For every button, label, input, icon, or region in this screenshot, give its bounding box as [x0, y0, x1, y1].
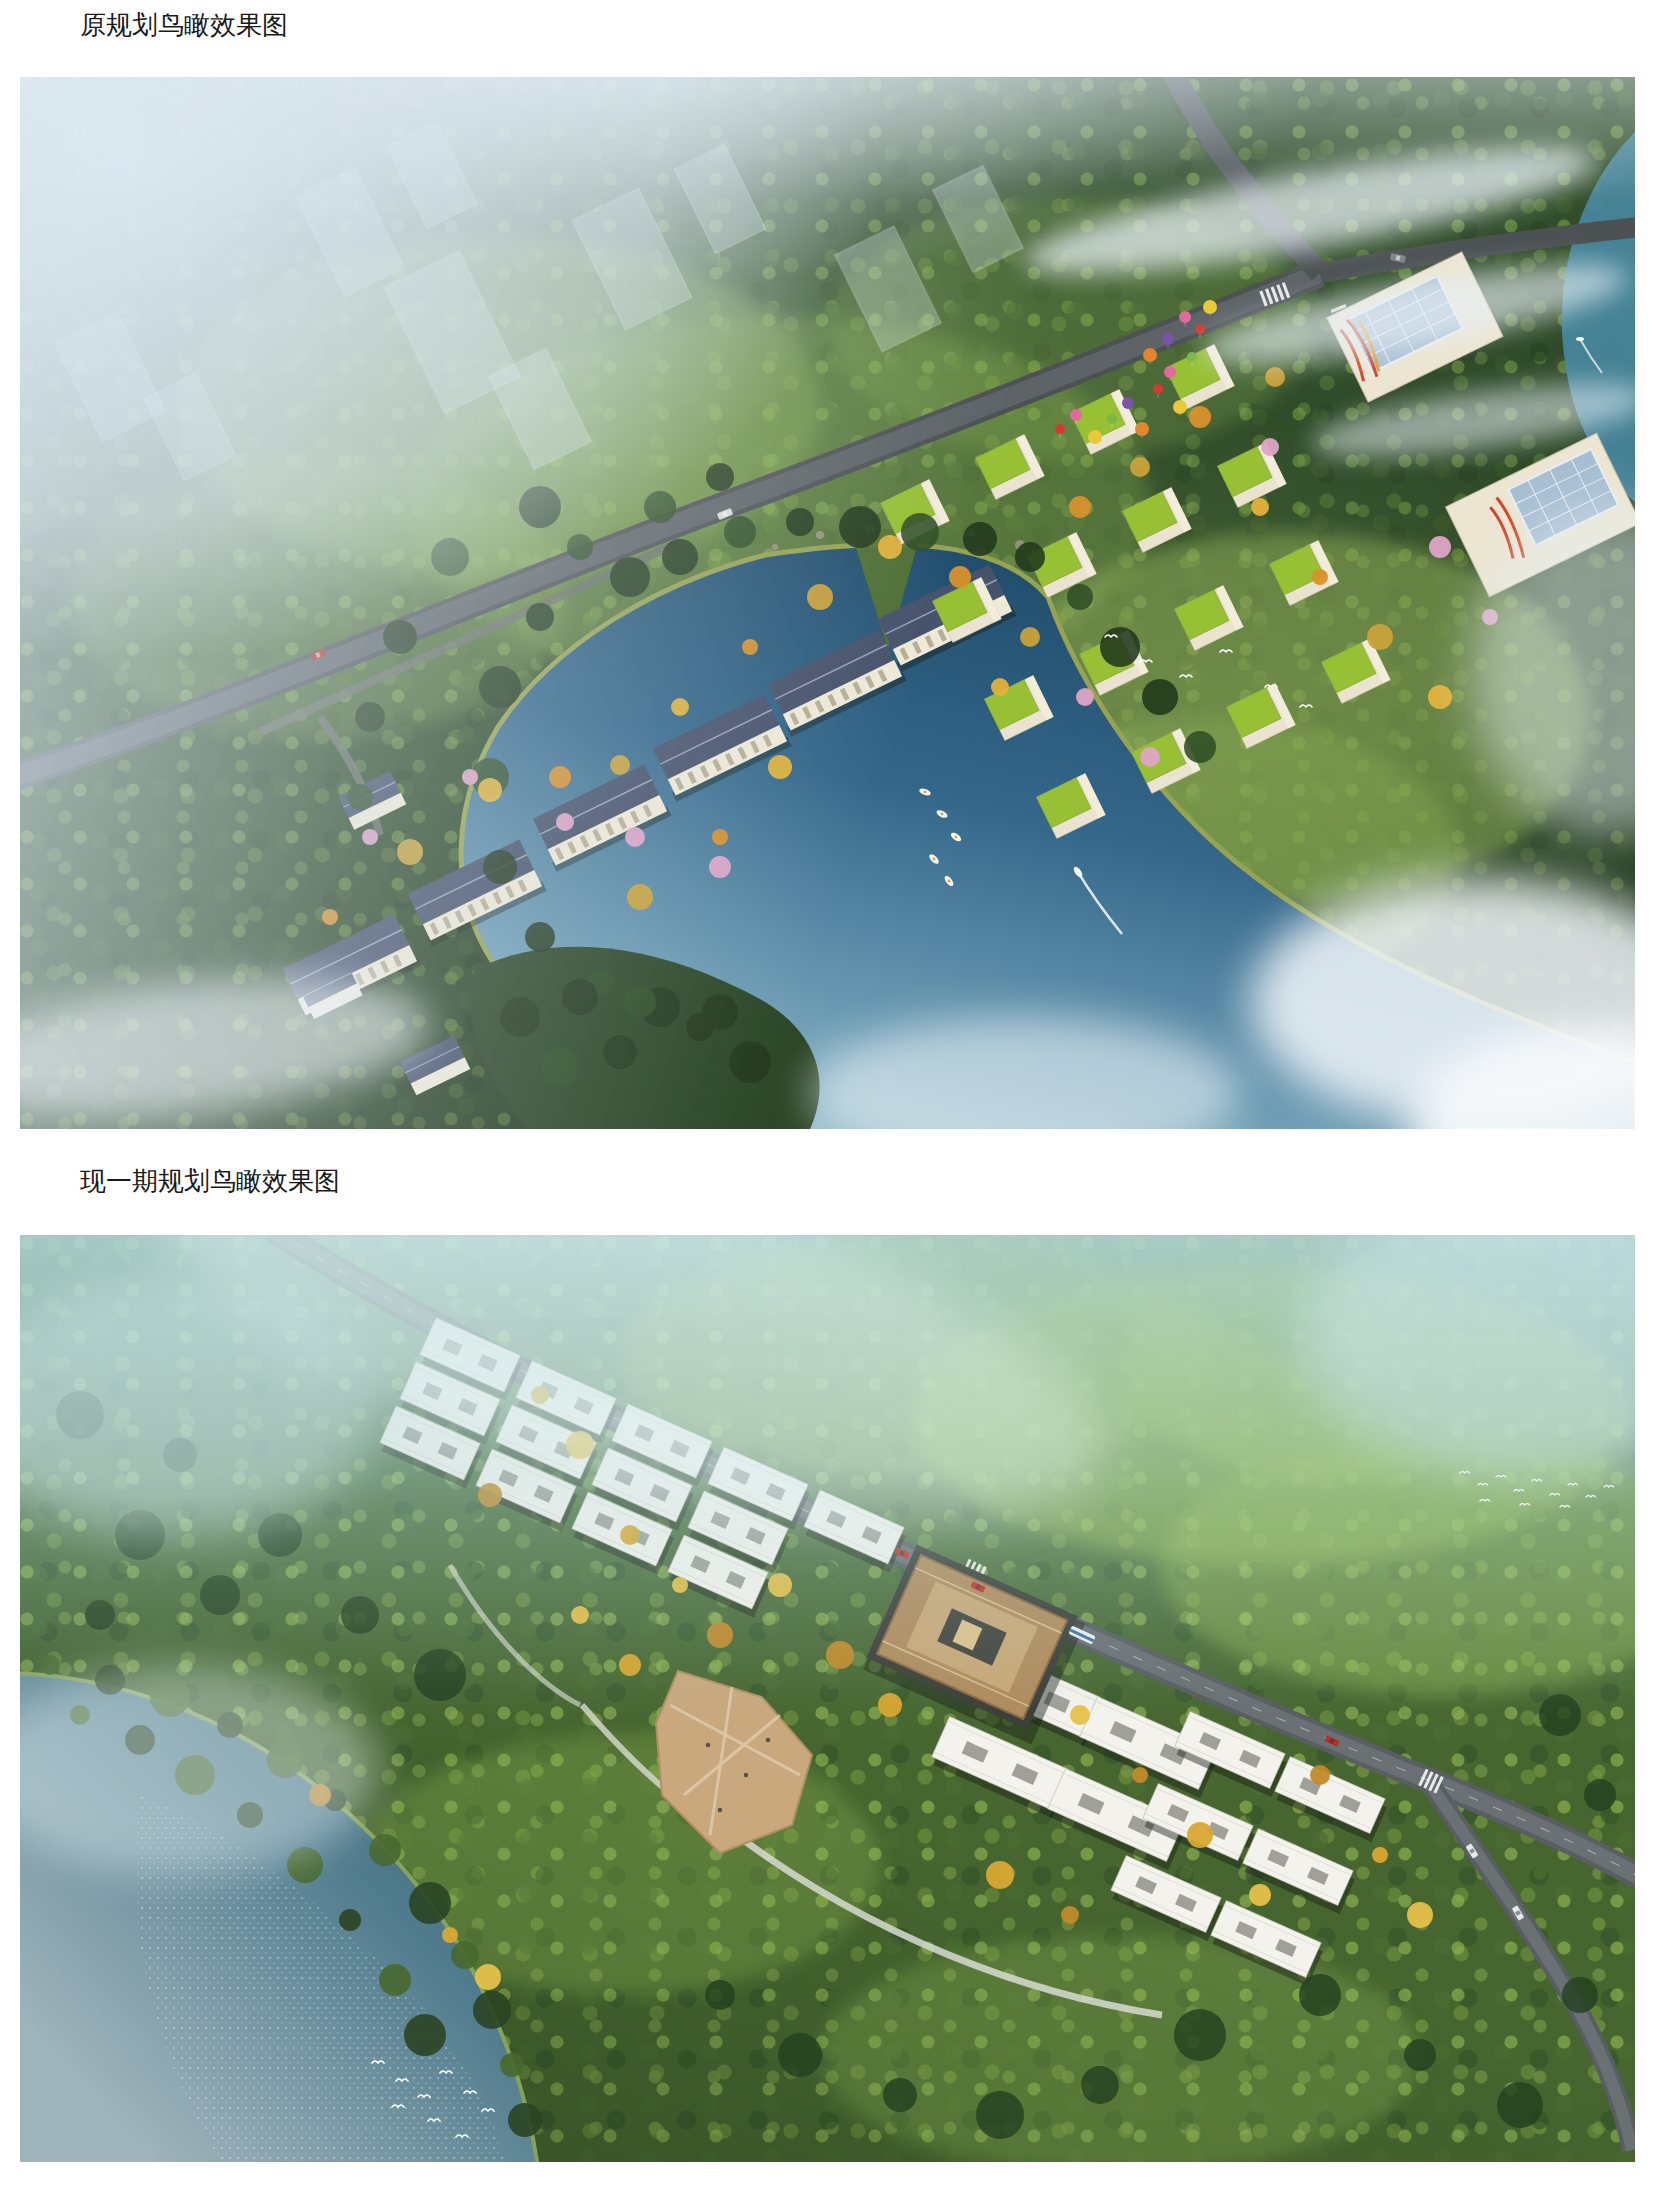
balloon	[1107, 414, 1117, 424]
tree-dark	[1497, 2082, 1543, 2128]
tree-autumn	[397, 839, 423, 865]
caption-original-plan: 原规划鸟瞰效果图	[80, 10, 288, 40]
tree-gold	[826, 1641, 854, 1669]
shore-tree	[379, 1964, 411, 1996]
tree-autumn	[807, 584, 833, 610]
shore-tree	[267, 1742, 303, 1778]
ghost-building	[387, 121, 478, 228]
tree-gold	[442, 1927, 458, 1943]
tree-gold	[531, 1386, 549, 1404]
tree-dark	[705, 1980, 735, 2010]
tree-dark	[85, 1600, 115, 1630]
balloon	[1143, 348, 1157, 362]
villa	[400, 1036, 470, 1096]
corner-boat	[1576, 337, 1584, 341]
tree-gold	[672, 1577, 688, 1593]
tree-gold	[707, 1622, 733, 1648]
rock	[772, 544, 778, 550]
tree-gold	[620, 1525, 640, 1545]
tree-dark	[414, 1649, 466, 1701]
shore-tree	[473, 1991, 511, 2029]
shore-tree	[40, 1655, 60, 1675]
tree-dark	[1142, 679, 1178, 715]
tree-dark	[1184, 731, 1216, 763]
shore-tree	[70, 1705, 90, 1725]
shore-tree	[287, 1847, 323, 1883]
page: 原规划鸟瞰效果图	[0, 0, 1653, 2195]
tree-blossom	[1076, 688, 1094, 706]
tree-autumn	[991, 678, 1009, 696]
tree-autumn	[610, 755, 630, 775]
shore-tree	[369, 1834, 401, 1866]
tree-blossom	[462, 769, 478, 785]
tree-gold	[475, 1964, 501, 1990]
boat-canopy	[941, 813, 944, 816]
balloon	[1179, 311, 1191, 323]
balloon	[1055, 424, 1065, 434]
tree-autumn	[549, 766, 571, 788]
tree-dark	[686, 1013, 714, 1041]
tree-gold	[1372, 1847, 1388, 1863]
tree-autumn	[1069, 496, 1091, 518]
shore-tree	[451, 1941, 479, 1969]
tree-dark	[258, 1513, 302, 1557]
tree-dark	[724, 516, 756, 548]
tree-gold	[768, 1573, 792, 1597]
balloon	[1203, 300, 1217, 314]
tree-blossom	[1261, 438, 1279, 456]
balloon	[1164, 366, 1176, 378]
tree-gold	[571, 1606, 589, 1624]
tree-dark	[1174, 2009, 1226, 2061]
tree-autumn	[1020, 627, 1040, 647]
tree-dark	[901, 513, 939, 551]
tree-gold	[1070, 1705, 1090, 1725]
tree-dark	[383, 620, 417, 654]
tree-dark	[115, 1510, 165, 1560]
tree-autumn	[1189, 406, 1211, 428]
figure-phase-one-aerial	[20, 1235, 1635, 2162]
tree-dark	[1081, 2066, 1119, 2104]
tree-dark	[56, 1391, 104, 1439]
shore-tree	[175, 1755, 215, 1795]
boat-canopy	[933, 858, 936, 861]
tree-dark	[519, 486, 561, 528]
tree-gold	[878, 1693, 902, 1717]
tree-dark	[431, 538, 469, 576]
tree-blossom	[362, 829, 378, 845]
tree-gold	[1132, 1767, 1148, 1783]
tree-dark	[976, 2091, 1024, 2139]
balloon	[1088, 430, 1102, 444]
shore-tree	[150, 1677, 190, 1717]
tree-dark	[1100, 627, 1140, 667]
tree-blossom	[625, 827, 645, 847]
tree-blossom	[556, 813, 574, 831]
rock	[816, 531, 824, 539]
tree-dark	[706, 463, 734, 491]
tree-autumn	[1130, 457, 1150, 477]
balloon	[1122, 397, 1134, 409]
tree-dark	[778, 2033, 822, 2077]
figure-original-plan-aerial	[20, 77, 1635, 1129]
shore-tree	[404, 2014, 446, 2056]
tree-autumn	[768, 755, 792, 779]
tree-dark	[786, 508, 814, 536]
tree-dark	[200, 1575, 240, 1615]
balloon	[1135, 422, 1149, 436]
tree-dark	[483, 850, 517, 884]
tree-blossom	[1429, 536, 1451, 558]
tree-dark	[1299, 1974, 1341, 2016]
tree-dark	[603, 1035, 637, 1069]
ghost-building	[674, 144, 766, 253]
tree-dark	[479, 666, 521, 708]
tree-dark	[624, 986, 656, 1018]
tree-dark	[729, 1041, 771, 1083]
tree-autumn	[671, 698, 689, 716]
shore-tree	[508, 2103, 542, 2137]
tree-gold	[309, 1784, 331, 1806]
tree-dark	[1067, 584, 1093, 610]
tree-blossom	[1482, 609, 1498, 625]
townhouse-block	[801, 1490, 909, 1572]
shore-tree	[217, 1712, 243, 1738]
boat-canopy	[924, 791, 927, 794]
original-plan-scene	[20, 77, 1635, 1129]
caption-phase-one-plan: 现一期规划鸟瞰效果图	[80, 1166, 340, 1196]
balloon	[1187, 352, 1197, 362]
tree-dark	[883, 2078, 917, 2112]
tree-autumn	[878, 535, 902, 559]
tree-gold	[1061, 1906, 1079, 1924]
tree-autumn	[478, 778, 502, 802]
slab-building	[281, 914, 421, 1022]
tree-blossom	[709, 856, 731, 878]
tree-dark	[1015, 542, 1045, 572]
tree-autumn	[1251, 498, 1269, 516]
tree-autumn	[712, 829, 728, 845]
tree-dark	[562, 979, 598, 1015]
ghost-building	[54, 312, 165, 442]
balloon	[1162, 333, 1174, 345]
tree-dark	[347, 784, 373, 810]
tree-gold	[1187, 1822, 1213, 1848]
tree-dark	[1404, 2039, 1436, 2071]
boat-canopy	[955, 836, 958, 839]
tree-gold	[478, 1483, 502, 1507]
tree-dark	[662, 539, 698, 575]
balloon	[1153, 384, 1163, 394]
tree-gold	[619, 1654, 641, 1676]
phase-one-scene	[20, 1235, 1635, 2162]
tree-autumn	[1312, 569, 1328, 585]
shore-tree	[339, 1909, 361, 1931]
tree-dark	[1562, 1977, 1598, 2013]
tree-gold	[986, 1861, 1014, 1889]
tree-dark	[1539, 1694, 1581, 1736]
tree-autumn	[1367, 624, 1393, 650]
balloon	[1173, 400, 1187, 414]
tree-dark	[525, 922, 555, 952]
shore-tree	[95, 1665, 125, 1695]
tree-autumn	[1265, 367, 1285, 387]
balloon	[1195, 324, 1205, 334]
tree-gold	[566, 1431, 594, 1459]
tree-dark	[500, 997, 540, 1037]
tree-autumn	[627, 884, 653, 910]
tree-autumn	[322, 909, 338, 925]
tree-dark	[567, 534, 593, 560]
tree-dark	[610, 557, 650, 597]
shore-tree	[237, 1802, 263, 1828]
balloon	[1070, 409, 1082, 421]
tree-dark	[541, 1048, 579, 1086]
tree-gold	[1249, 1884, 1271, 1906]
shore-tree	[500, 2053, 524, 2077]
tree-dark	[963, 522, 997, 556]
tree-autumn	[1428, 685, 1452, 709]
boat-canopy	[948, 880, 951, 883]
tree-dark	[526, 603, 554, 631]
tree-dark	[355, 702, 385, 732]
tree-dark	[1584, 1779, 1616, 1811]
tree-blossom	[1140, 747, 1160, 767]
tree-dark	[839, 506, 881, 548]
tree-dark	[163, 1438, 197, 1472]
shore-tree	[409, 1882, 451, 1924]
tree-autumn	[949, 566, 971, 588]
tree-dark	[644, 491, 676, 523]
shore-tree	[125, 1725, 155, 1755]
tree-gold	[1310, 1765, 1330, 1785]
tree-gold	[1407, 1902, 1433, 1928]
tree-autumn	[742, 639, 758, 655]
tree-dark	[341, 1596, 379, 1634]
